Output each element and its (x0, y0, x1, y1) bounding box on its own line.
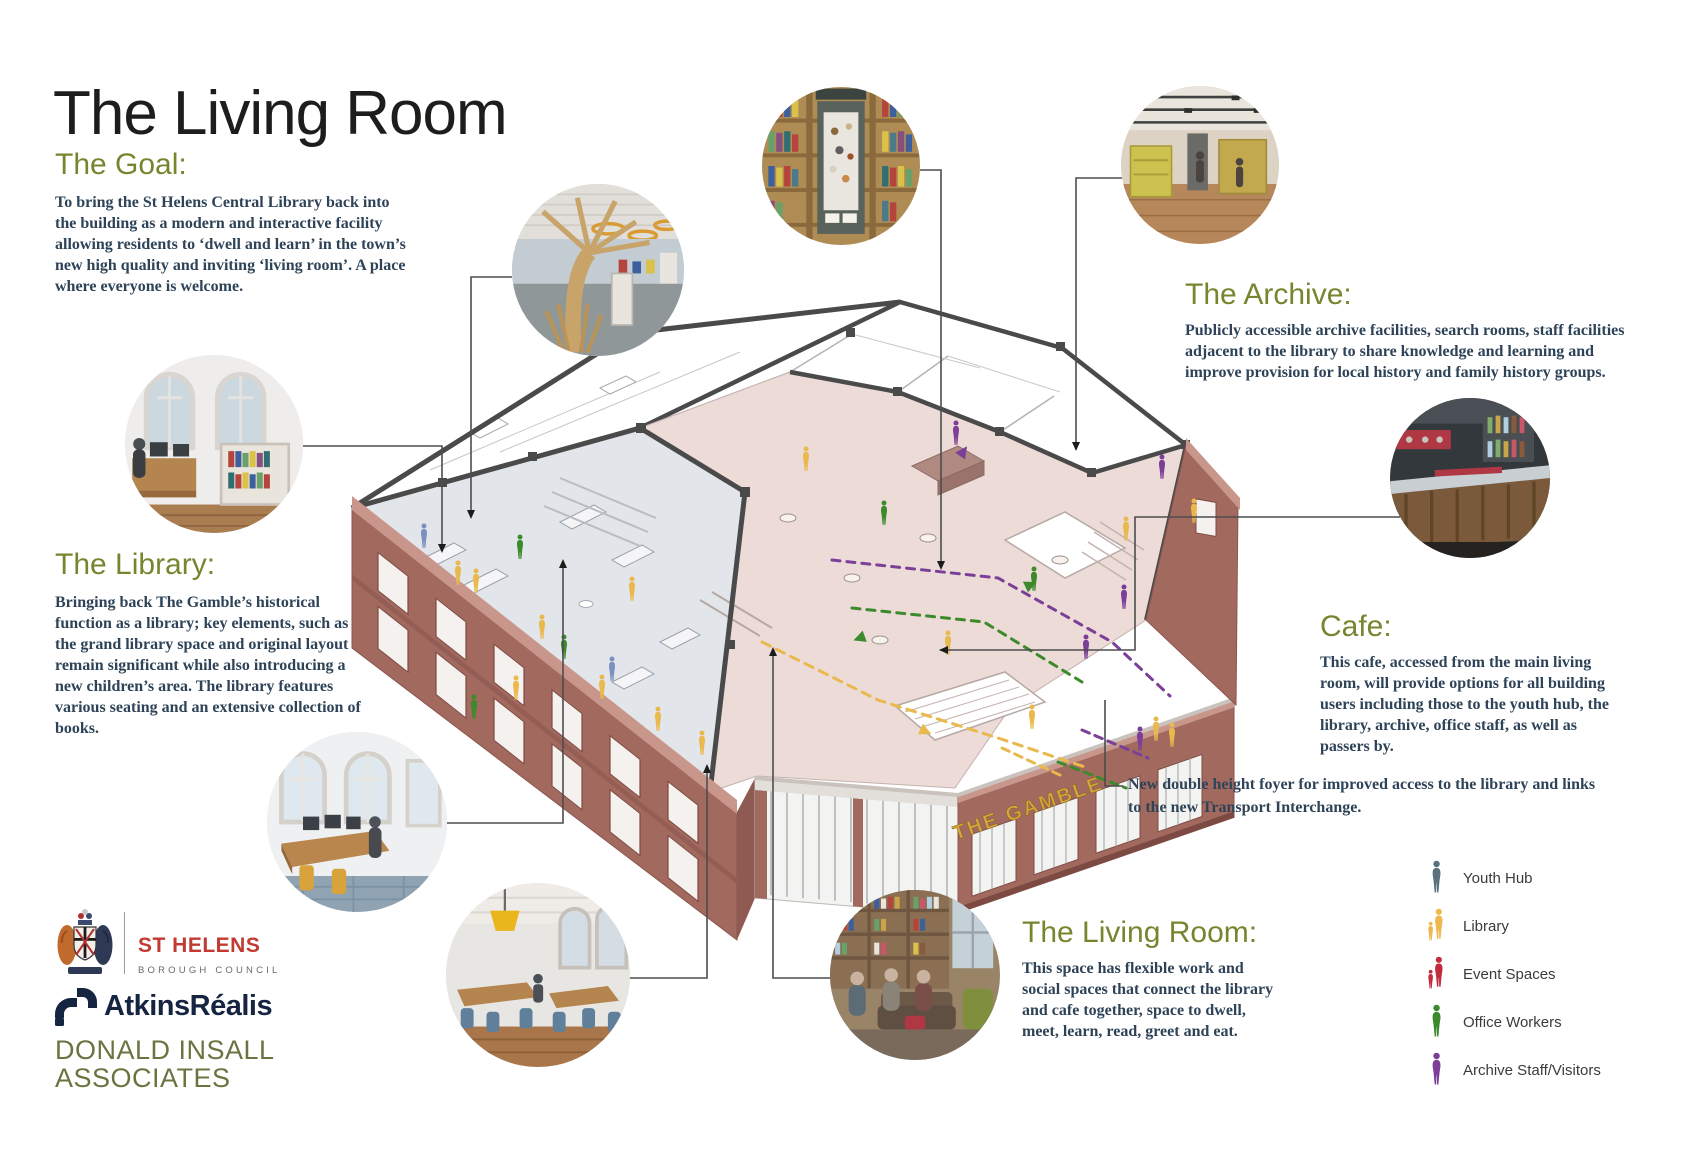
youth-hub-person-icon (1425, 858, 1449, 898)
legend-label-event-spaces: Event Spaces (1463, 966, 1556, 983)
living-room-body: This space has flexible work and social … (1022, 958, 1274, 1042)
logo-divider (124, 912, 125, 974)
search-room-photo (125, 355, 303, 533)
living-room-photo (830, 890, 1000, 1060)
goal-body: To bring the St Helens Central Library b… (55, 192, 407, 297)
cafe-heading: Cafe: (1320, 610, 1392, 644)
poster-canvas: THE GAMBLE (0, 0, 1683, 1176)
poster-title: The Living Room (53, 78, 507, 149)
foyer-annotation: New double height foyer for improved acc… (1128, 773, 1606, 819)
atkinsrealis-logo-text: AtkinsRéalis (104, 990, 272, 1023)
archive-staff-person-icon (1425, 1050, 1449, 1090)
legend-label-library: Library (1463, 918, 1509, 935)
event-spaces-person-child-icon (1425, 954, 1449, 994)
living-room-heading: The Living Room: (1022, 916, 1257, 950)
st-helens-logo-subtitle: BOROUGH COUNCIL (138, 965, 280, 976)
st-helens-logo-text: ST HELENS (138, 934, 260, 958)
open-plan-photo (446, 883, 630, 1067)
legend-label-office-workers: Office Workers (1463, 1014, 1562, 1031)
library-person-child-icon (1425, 906, 1449, 946)
office-photo (267, 732, 447, 912)
library-interior-photo (1121, 86, 1279, 244)
library-heading: The Library: (55, 548, 215, 582)
atkinsrealis-logo-icon (53, 986, 99, 1028)
st-helens-crest-icon (55, 905, 115, 979)
childrens-area-tree-photo (512, 184, 684, 356)
legend-label-youth-hub: Youth Hub (1463, 870, 1533, 887)
legend: Youth Hub Library Event Spaces Office Wo… (1425, 856, 1665, 1096)
cafe-body: This cafe, accessed from the main living… (1320, 652, 1630, 757)
archive-body: Publicly accessible archive facilities, … (1185, 320, 1635, 383)
goal-heading: The Goal: (55, 148, 187, 182)
office-workers-person-icon (1425, 1002, 1449, 1042)
donald-insall-logo-line1: DONALD INSALL (55, 1036, 275, 1064)
archive-heading: The Archive: (1185, 278, 1352, 312)
cafe-counter-photo (1390, 398, 1550, 558)
donald-insall-logo-line2: ASSOCIATES (55, 1064, 231, 1092)
legend-label-archive-staff: Archive Staff/Visitors (1463, 1062, 1601, 1079)
library-body: Bringing back The Gamble’s historical fu… (55, 592, 367, 739)
archive-display-photo (762, 87, 920, 245)
